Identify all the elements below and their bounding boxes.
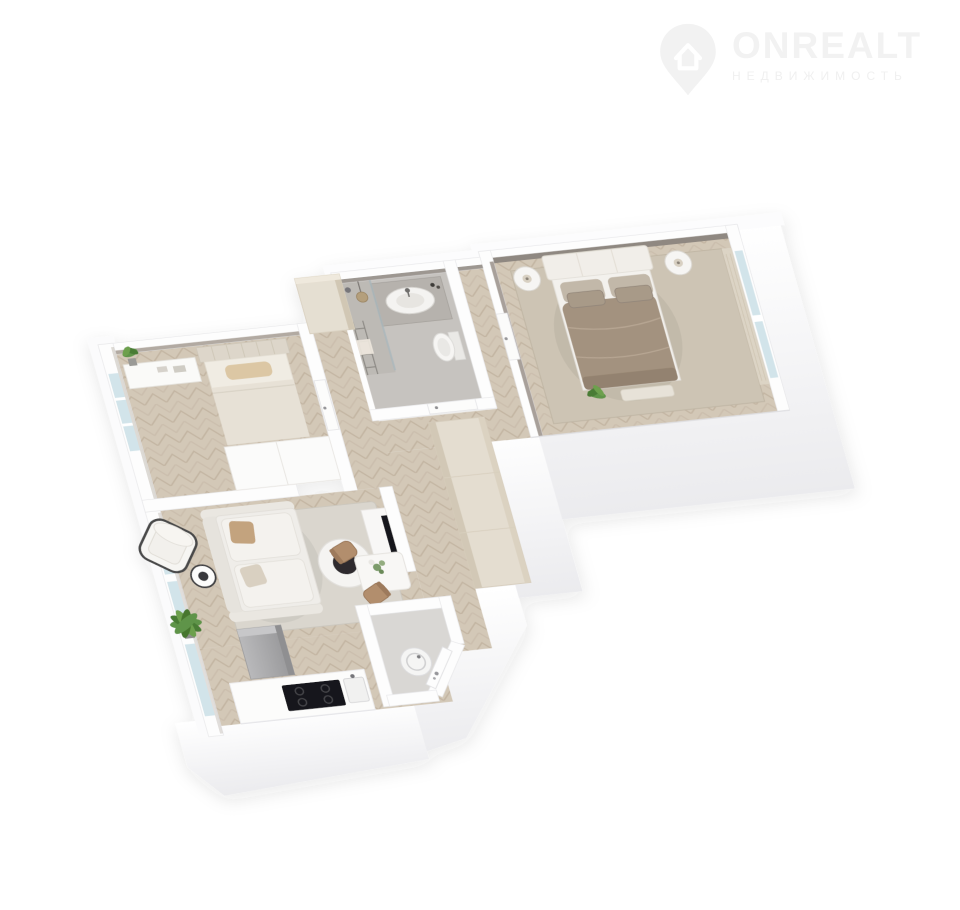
bedroom2-duvet <box>212 379 310 445</box>
pillow-front-right <box>614 285 654 304</box>
floor-plan-render-page: ONREALT НЕДВИЖИМОСТЬ <box>0 0 960 910</box>
pillow-front-left <box>566 290 606 309</box>
sofa-pillow-brown <box>228 521 255 544</box>
bathroom-south-wall-east <box>475 397 497 410</box>
plan-projection <box>52 212 924 799</box>
master-window-mullion <box>752 315 764 322</box>
desk-item-1 <box>157 366 169 373</box>
apartment-3d-floorplan <box>0 0 960 910</box>
desk-item-2 <box>173 365 187 373</box>
